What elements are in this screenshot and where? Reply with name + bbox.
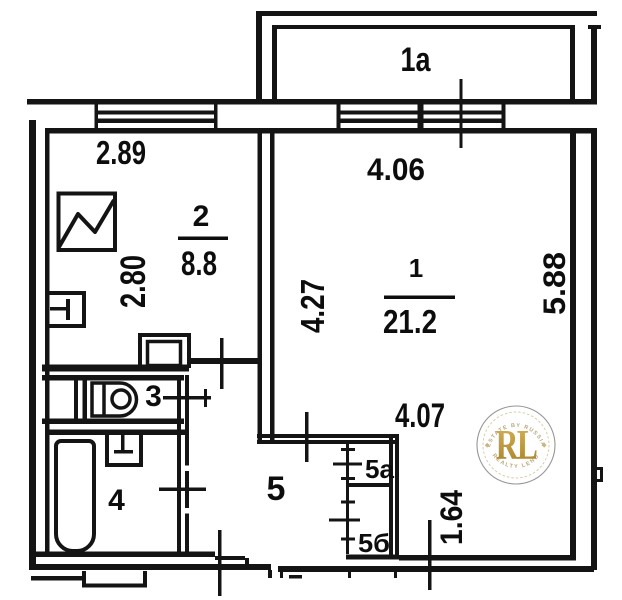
svg-text:8.8: 8.8 [181,245,217,283]
svg-text:1.64: 1.64 [433,490,469,545]
svg-text:5а: 5а [365,454,395,484]
svg-text:4: 4 [108,484,125,517]
svg-text:3: 3 [145,380,162,413]
svg-text:RL: RL [496,423,538,469]
svg-text:5.88: 5.88 [536,252,572,315]
svg-text:1a: 1a [401,41,432,79]
svg-text:2: 2 [193,200,210,233]
svg-text:5: 5 [267,470,286,508]
svg-text:1: 1 [409,253,423,283]
svg-text:2.80: 2.80 [114,255,153,308]
svg-text:21.2: 21.2 [383,303,437,340]
svg-text:4.27: 4.27 [294,279,331,333]
svg-text:4.07: 4.07 [395,397,445,435]
svg-text:4.06: 4.06 [367,151,425,187]
svg-text:2.89: 2.89 [96,134,146,171]
svg-text:5б: 5б [358,528,390,558]
